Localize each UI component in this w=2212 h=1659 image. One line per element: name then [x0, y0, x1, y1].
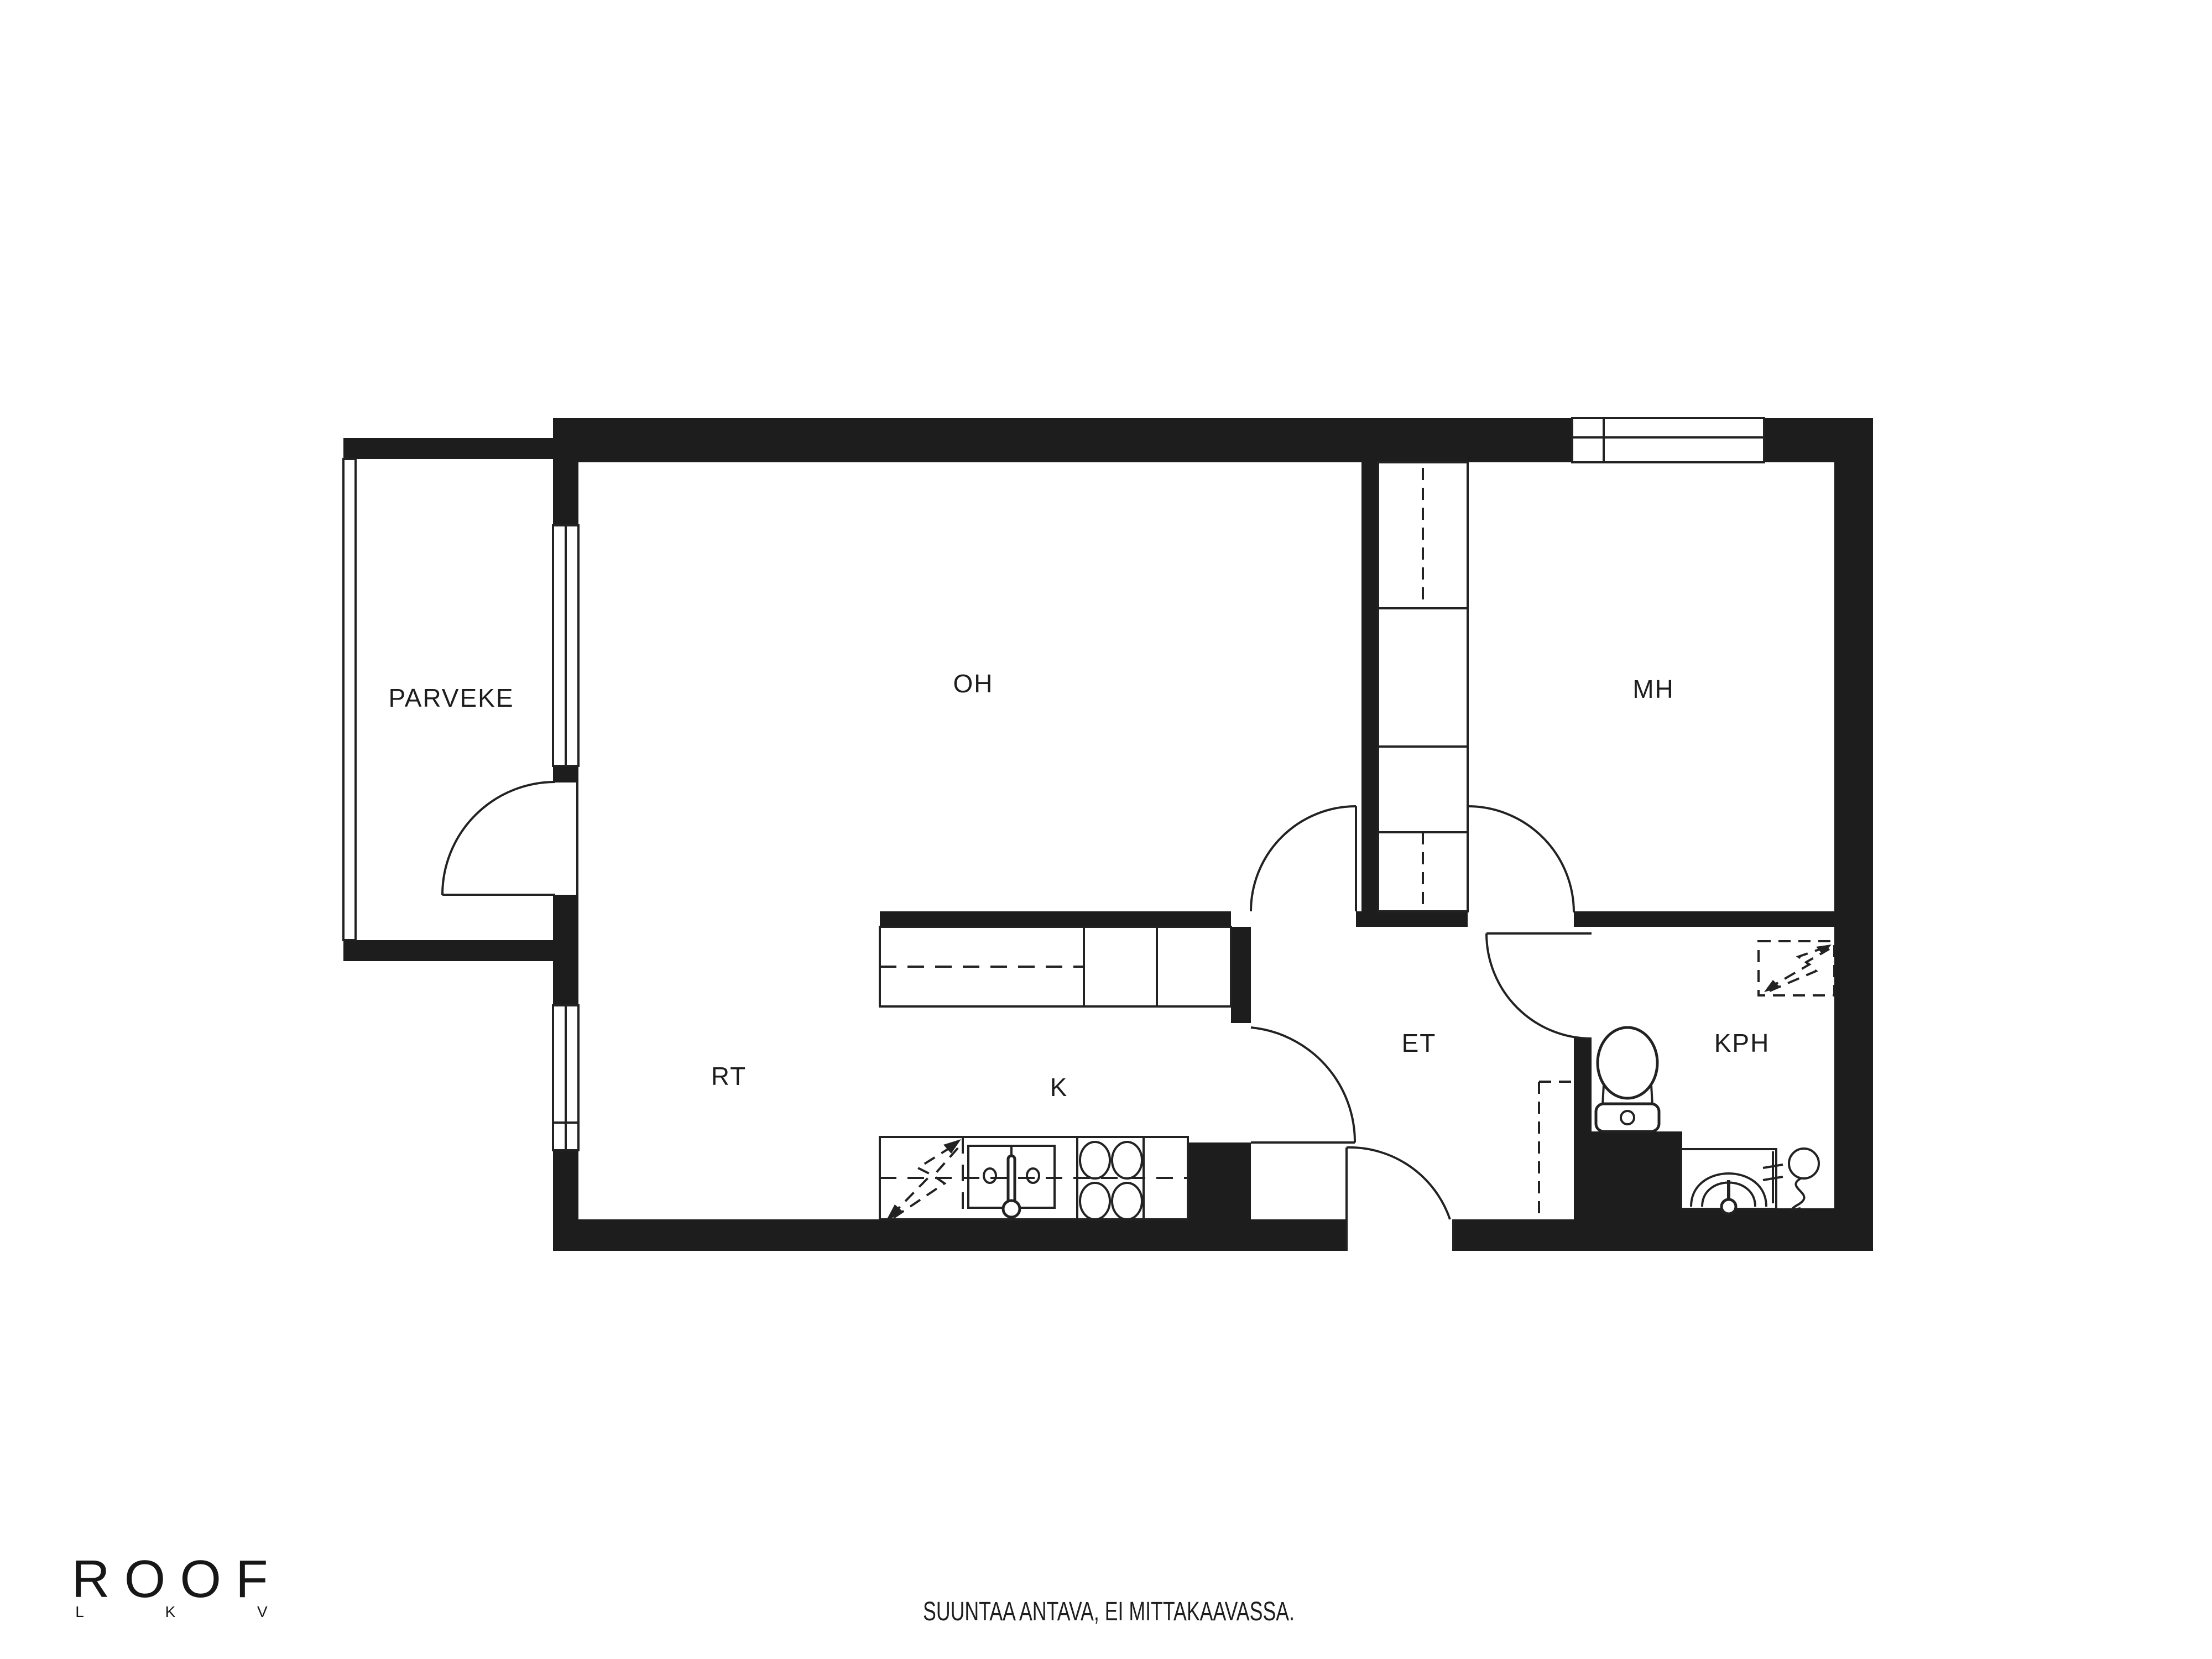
door-bathroom [1486, 933, 1592, 1039]
balcony-railing [343, 459, 356, 940]
wall-bottom-bathroom [1682, 1208, 1873, 1251]
kitchen-sink [968, 1146, 1055, 1217]
wall-spine-right [1574, 911, 1841, 927]
door-kitchen-hall [1251, 1027, 1355, 1142]
room-label-parveke: PARVEKE [388, 684, 514, 712]
room-label-rt: RT [711, 1062, 747, 1091]
wall-block-kitchen-hall [1188, 1142, 1251, 1251]
kitchen-counter-bottom [880, 1137, 1188, 1221]
wall-block-bathroom [1574, 1131, 1682, 1251]
room-label-kph: KPH [1714, 1029, 1770, 1057]
wall-left-mid [553, 895, 578, 1005]
wall-kitchen-hall [1231, 927, 1251, 1023]
wall-spine-left [880, 911, 1231, 927]
shower-hose-icon [1763, 1149, 1819, 1209]
washbasin-icon [1681, 1149, 1776, 1214]
branding-logo: ROOF L K V [71, 1550, 306, 1620]
kitchen-counter-top [880, 927, 1231, 1006]
doors [442, 782, 1592, 1251]
windows [343, 418, 1764, 1150]
wall-bathroom-hall [1574, 1037, 1592, 1131]
room-labels: PARVEKE OH MH RT K ET KPH [388, 669, 1770, 1102]
window-bedroom-north [1572, 418, 1764, 462]
floor-plan: PARVEKE OH MH RT K ET KPH ROOF L K V SUU… [0, 0, 2212, 1659]
washer-reservation-lightning-icon [1759, 941, 1834, 995]
stove-burners-icon [1080, 1142, 1142, 1219]
window-livingroom-west [553, 525, 578, 766]
dishwasher-reservation-lightning-icon [886, 1139, 961, 1221]
logo-subtext: L K V [75, 1603, 306, 1620]
wall-left-block [553, 766, 578, 782]
wall-spine-mid [1356, 911, 1468, 927]
door-livingroom-hall [1251, 806, 1356, 911]
room-label-et: ET [1402, 1029, 1437, 1057]
wall-balcony-top [343, 438, 555, 459]
room-label-k: K [1050, 1073, 1068, 1102]
wall-balcony-bottom [343, 940, 555, 961]
wall-livingroom-closet [1361, 462, 1378, 911]
window-workroom-west [553, 1005, 578, 1150]
door-entrance [1347, 1147, 1453, 1251]
logo-text: ROOF [71, 1550, 282, 1609]
hall-closet-reservation [1539, 1082, 1574, 1219]
room-label-oh: OH [953, 669, 994, 698]
toilet-icon [1596, 1027, 1659, 1131]
room-label-mh: MH [1632, 675, 1674, 703]
wall-right [1834, 462, 1873, 1251]
wall-bottom-kitchen [553, 1219, 1188, 1251]
door-balcony [442, 782, 577, 895]
wall-bottom-hall-left [1251, 1219, 1347, 1251]
wall-left-upper [553, 418, 578, 525]
wall-top-right [1764, 418, 1873, 462]
wall-top-left [555, 418, 1572, 462]
wardrobe-column [1378, 462, 1468, 911]
disclaimer-text: SUUNTAA ANTAVA, EI MITTAKAAVASSA. [923, 1597, 1295, 1626]
door-bedroom [1468, 806, 1574, 912]
